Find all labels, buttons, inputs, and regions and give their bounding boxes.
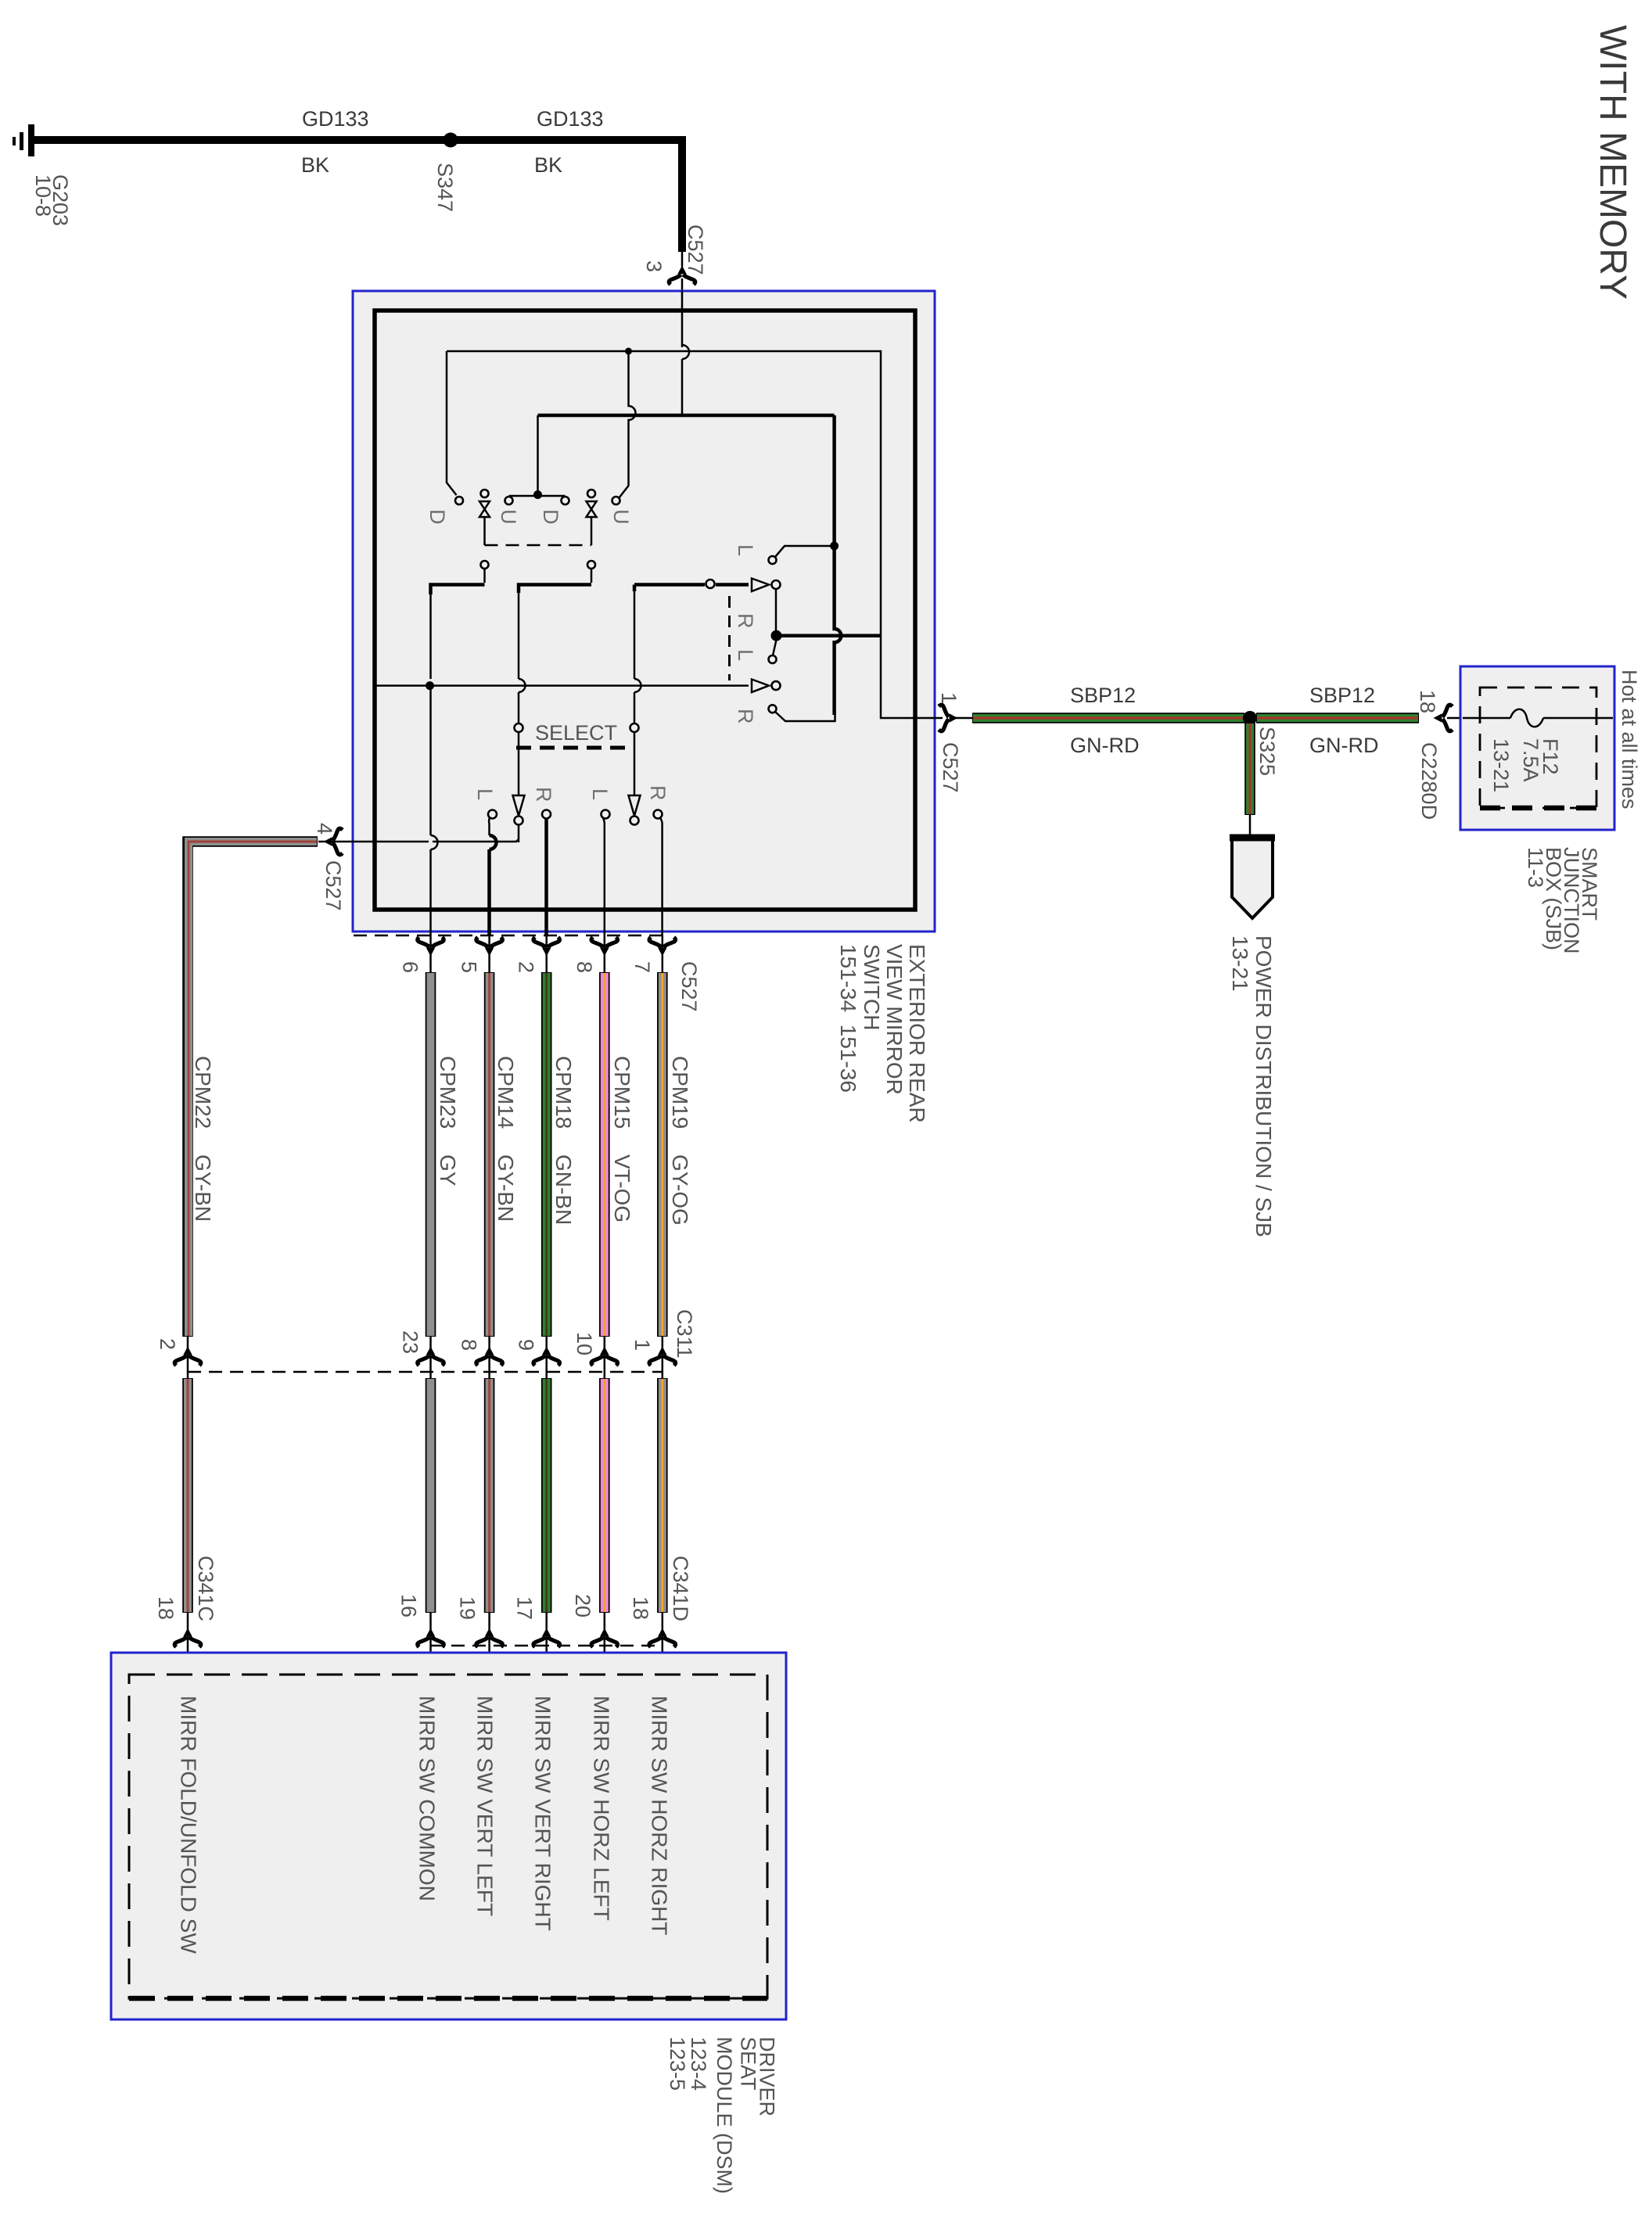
svg-text:10-8: 10-8	[31, 174, 55, 217]
svg-text:19: 19	[456, 1596, 479, 1620]
svg-text:BK: BK	[301, 153, 329, 177]
svg-text:20: 20	[571, 1594, 594, 1617]
svg-text:MIRR FOLD/UNFOLD SW: MIRR FOLD/UNFOLD SW	[177, 1696, 201, 1954]
svg-text:C527: C527	[677, 961, 701, 1012]
svg-text:R: R	[734, 613, 757, 629]
svg-text:CPM14: CPM14	[494, 1056, 518, 1129]
svg-text:CPM22: CPM22	[191, 1056, 215, 1129]
svg-text:10: 10	[573, 1332, 596, 1355]
svg-text:18: 18	[154, 1596, 178, 1620]
svg-text:U: U	[609, 509, 633, 525]
svg-text:EXTERIOR REAR: EXTERIOR REAR	[905, 944, 929, 1123]
svg-text:C527: C527	[939, 742, 962, 793]
svg-text:GN-RD: GN-RD	[1070, 734, 1140, 757]
svg-text:GD133: GD133	[537, 107, 604, 131]
svg-text:3: 3	[642, 260, 666, 272]
svg-text:GN-BN: GN-BN	[551, 1154, 576, 1225]
svg-text:R: R	[646, 785, 670, 801]
svg-text:8: 8	[458, 1339, 481, 1351]
svg-text:MODULE (DSM): MODULE (DSM)	[713, 2037, 736, 2194]
svg-text:MIRR SW HORZ RIGHT: MIRR SW HORZ RIGHT	[648, 1696, 672, 1935]
svg-text:MIRR SW HORZ LEFT: MIRR SW HORZ LEFT	[590, 1696, 614, 1921]
svg-text:U: U	[497, 509, 520, 525]
svg-text:SBP12: SBP12	[1070, 684, 1136, 707]
svg-text:13-21: 13-21	[1489, 738, 1513, 792]
svg-text:MIRR SW COMMON: MIRR SW COMMON	[415, 1696, 440, 1901]
svg-text:1: 1	[937, 692, 961, 704]
svg-text:D: D	[426, 509, 449, 525]
svg-text:6: 6	[399, 961, 422, 973]
svg-text:GY: GY	[436, 1154, 460, 1186]
svg-text:Hot at all times: Hot at all times	[1618, 670, 1641, 810]
svg-text:VT-OG: VT-OG	[610, 1154, 634, 1222]
svg-text:C341D: C341D	[669, 1556, 692, 1621]
svg-text:7: 7	[630, 961, 654, 973]
svg-text:18: 18	[629, 1596, 652, 1620]
svg-text:9: 9	[515, 1339, 538, 1351]
svg-text:GY-OG: GY-OG	[668, 1154, 692, 1226]
svg-text:POWER DISTRIBUTION / SJB: POWER DISTRIBUTION / SJB	[1252, 935, 1276, 1237]
svg-text:123-4: 123-4	[687, 2037, 710, 2091]
svg-text:4: 4	[313, 823, 336, 835]
svg-text:L: L	[473, 788, 497, 800]
svg-text:C527: C527	[684, 224, 707, 275]
svg-text:CPM23: CPM23	[436, 1056, 460, 1129]
svg-text:SBP12: SBP12	[1309, 684, 1375, 707]
svg-text:CPM19: CPM19	[668, 1056, 692, 1129]
svg-text:D: D	[539, 509, 562, 525]
svg-text:SEAT: SEAT	[737, 2037, 760, 2091]
svg-text:MIRR SW VERT LEFT: MIRR SW VERT LEFT	[473, 1696, 497, 1916]
svg-text:13-21: 13-21	[1228, 935, 1252, 992]
svg-text:123-5: 123-5	[666, 2037, 689, 2091]
svg-text:16: 16	[397, 1594, 421, 1617]
svg-text:WITH MEMORY: WITH MEMORY	[1592, 25, 1633, 300]
svg-text:5: 5	[458, 961, 481, 973]
svg-text:R: R	[734, 709, 757, 724]
svg-text:VIEW MIRROR: VIEW MIRROR	[882, 944, 907, 1095]
svg-text:L: L	[588, 788, 612, 800]
svg-text:GD133: GD133	[302, 107, 369, 131]
svg-text:23: 23	[399, 1330, 422, 1354]
svg-text:17: 17	[513, 1596, 537, 1620]
svg-text:S347: S347	[433, 163, 457, 212]
svg-text:11-3: 11-3	[1524, 847, 1547, 888]
svg-text:151-34 151-36: 151-34 151-36	[836, 944, 860, 1093]
svg-text:C341C: C341C	[194, 1556, 217, 1621]
svg-text:R: R	[532, 787, 555, 802]
svg-text:L: L	[734, 649, 757, 661]
svg-text:GN-RD: GN-RD	[1309, 734, 1379, 757]
svg-text:GY-BN: GY-BN	[191, 1154, 215, 1222]
svg-text:C311: C311	[673, 1309, 696, 1359]
svg-text:BK: BK	[534, 153, 562, 177]
svg-text:8: 8	[573, 961, 596, 973]
svg-text:7.5A: 7.5A	[1519, 738, 1542, 782]
svg-text:L: L	[734, 544, 757, 556]
svg-text:2: 2	[156, 1338, 179, 1350]
svg-text:SWITCH: SWITCH	[860, 944, 884, 1030]
svg-text:GY-BN: GY-BN	[494, 1154, 518, 1222]
svg-text:CPM15: CPM15	[610, 1056, 634, 1129]
svg-text:18: 18	[1416, 690, 1439, 713]
svg-text:2: 2	[515, 961, 538, 973]
svg-text:C527: C527	[321, 860, 345, 911]
svg-text:MIRR SW VERT RIGHT: MIRR SW VERT RIGHT	[531, 1696, 555, 1931]
svg-text:SELECT: SELECT	[535, 721, 617, 745]
svg-text:1: 1	[630, 1339, 654, 1351]
svg-text:CPM18: CPM18	[551, 1056, 576, 1129]
svg-text:C2280D: C2280D	[1417, 742, 1441, 820]
svg-text:S325: S325	[1255, 727, 1279, 776]
